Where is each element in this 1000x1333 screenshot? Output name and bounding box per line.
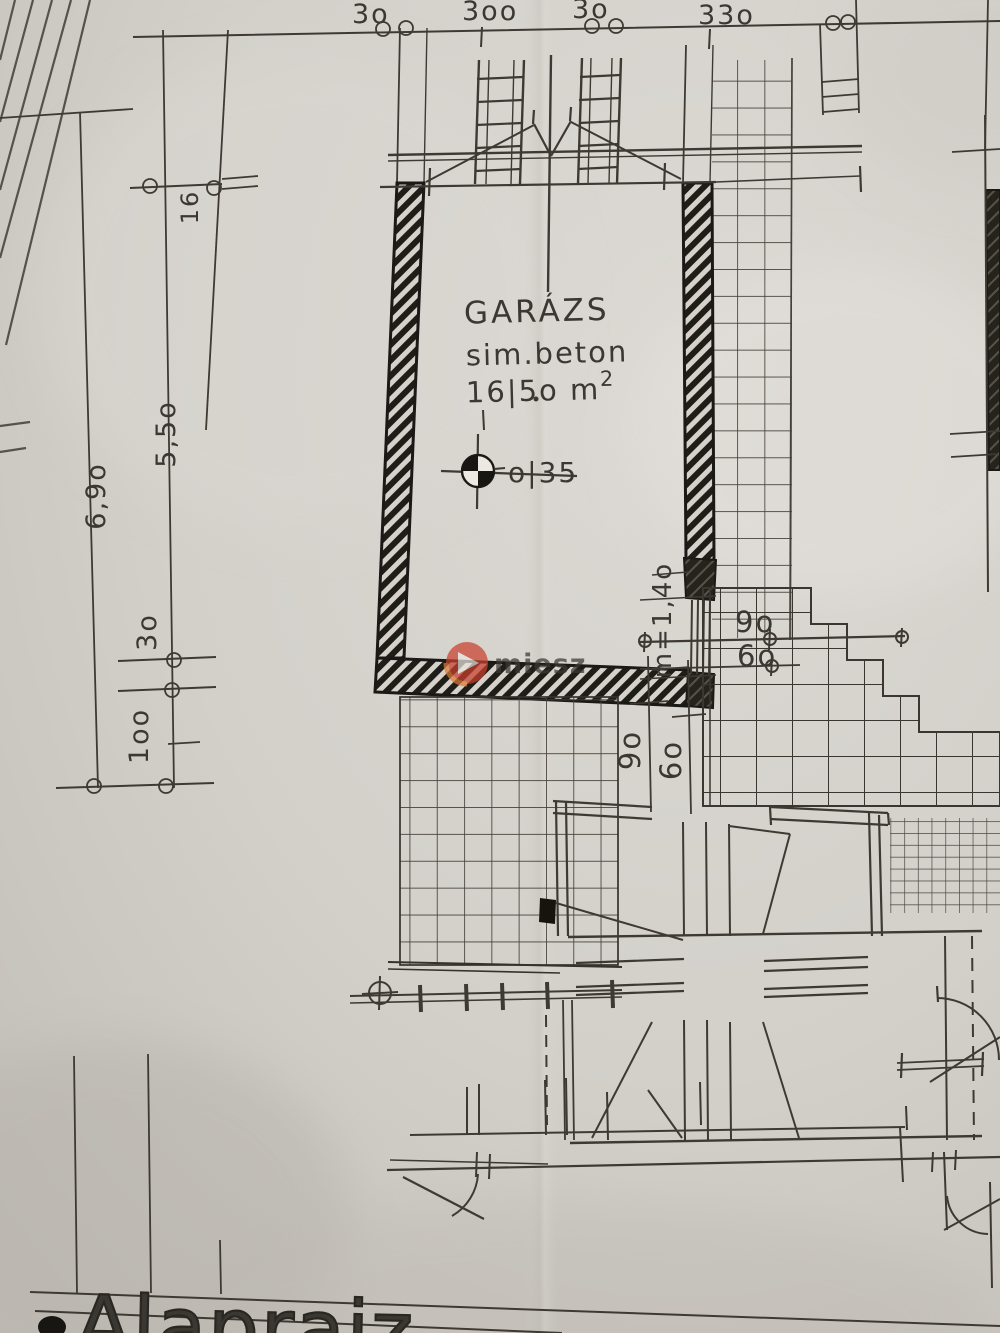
area-tick xyxy=(483,410,484,430)
dim-label-top-2: 3oo xyxy=(462,0,518,27)
brick-grid-band xyxy=(712,58,792,640)
floor-plan-drawing: 3o 3oo 3o 33o 16 5,5o 6,9o 3o 1oo xyxy=(0,0,1000,1333)
floor-plan-photo: 3o 3oo 3o 33o 16 5,5o 6,9o 3o 1oo xyxy=(0,0,1000,1333)
plan-title: Alaprajz xyxy=(75,1278,416,1333)
dim-label-100: 1oo xyxy=(124,708,155,764)
dim-label-550: 5,5o xyxy=(151,400,182,467)
garage-right-wall xyxy=(683,183,714,560)
column-dia-label: o|35 xyxy=(508,456,578,489)
dim-label-30: 3o xyxy=(132,613,163,651)
watermark-text: miesz xyxy=(494,649,587,680)
area-value: 16|5o m xyxy=(465,372,600,410)
dim-label-top-3: 3o xyxy=(572,0,610,25)
area-dot xyxy=(534,397,539,402)
dim-label-16: 16 xyxy=(176,190,204,225)
dim-label-690: 6,9o xyxy=(81,462,112,529)
watermark: miesz xyxy=(446,642,587,684)
window-sill-label: m=1,4o xyxy=(648,562,678,678)
area-exponent: 2 xyxy=(600,367,616,391)
dim-label-top-1: 3o xyxy=(352,0,390,30)
room-name-label: GARÁZS xyxy=(463,292,610,332)
dim-label-top-4: 33o xyxy=(698,0,755,31)
fine-grid xyxy=(890,818,1000,913)
window-width-label-4: 6o xyxy=(654,740,688,780)
